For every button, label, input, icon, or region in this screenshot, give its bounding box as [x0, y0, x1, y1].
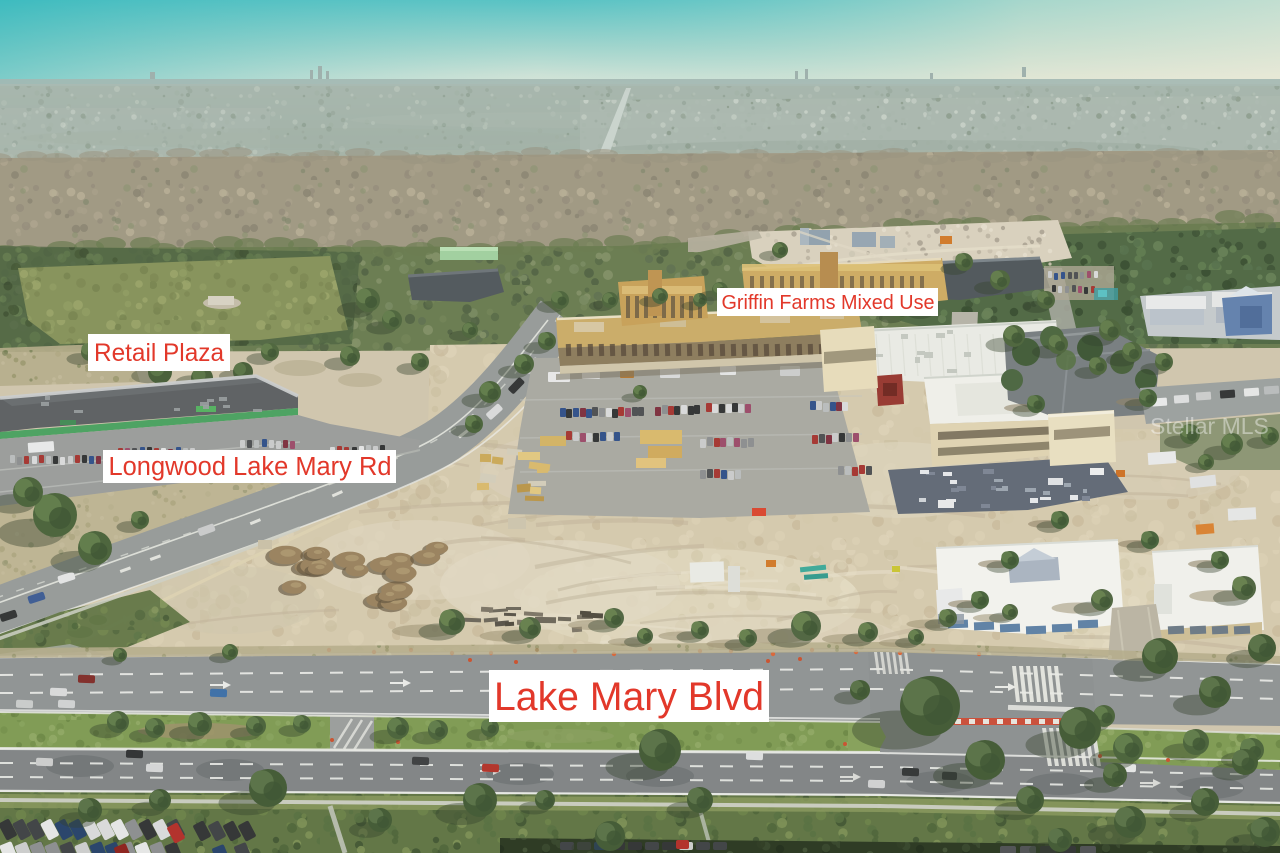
svg-text:Longwood Lake Mary Rd: Longwood Lake Mary Rd: [109, 453, 392, 481]
svg-text:Retail Plaza: Retail Plaza: [94, 339, 224, 367]
svg-text:Stellar MLS: Stellar MLS: [1150, 413, 1269, 439]
svg-text:Lake Mary Blvd: Lake Mary Blvd: [494, 675, 764, 719]
svg-text:Griffin Farms Mixed Use: Griffin Farms Mixed Use: [722, 292, 935, 314]
